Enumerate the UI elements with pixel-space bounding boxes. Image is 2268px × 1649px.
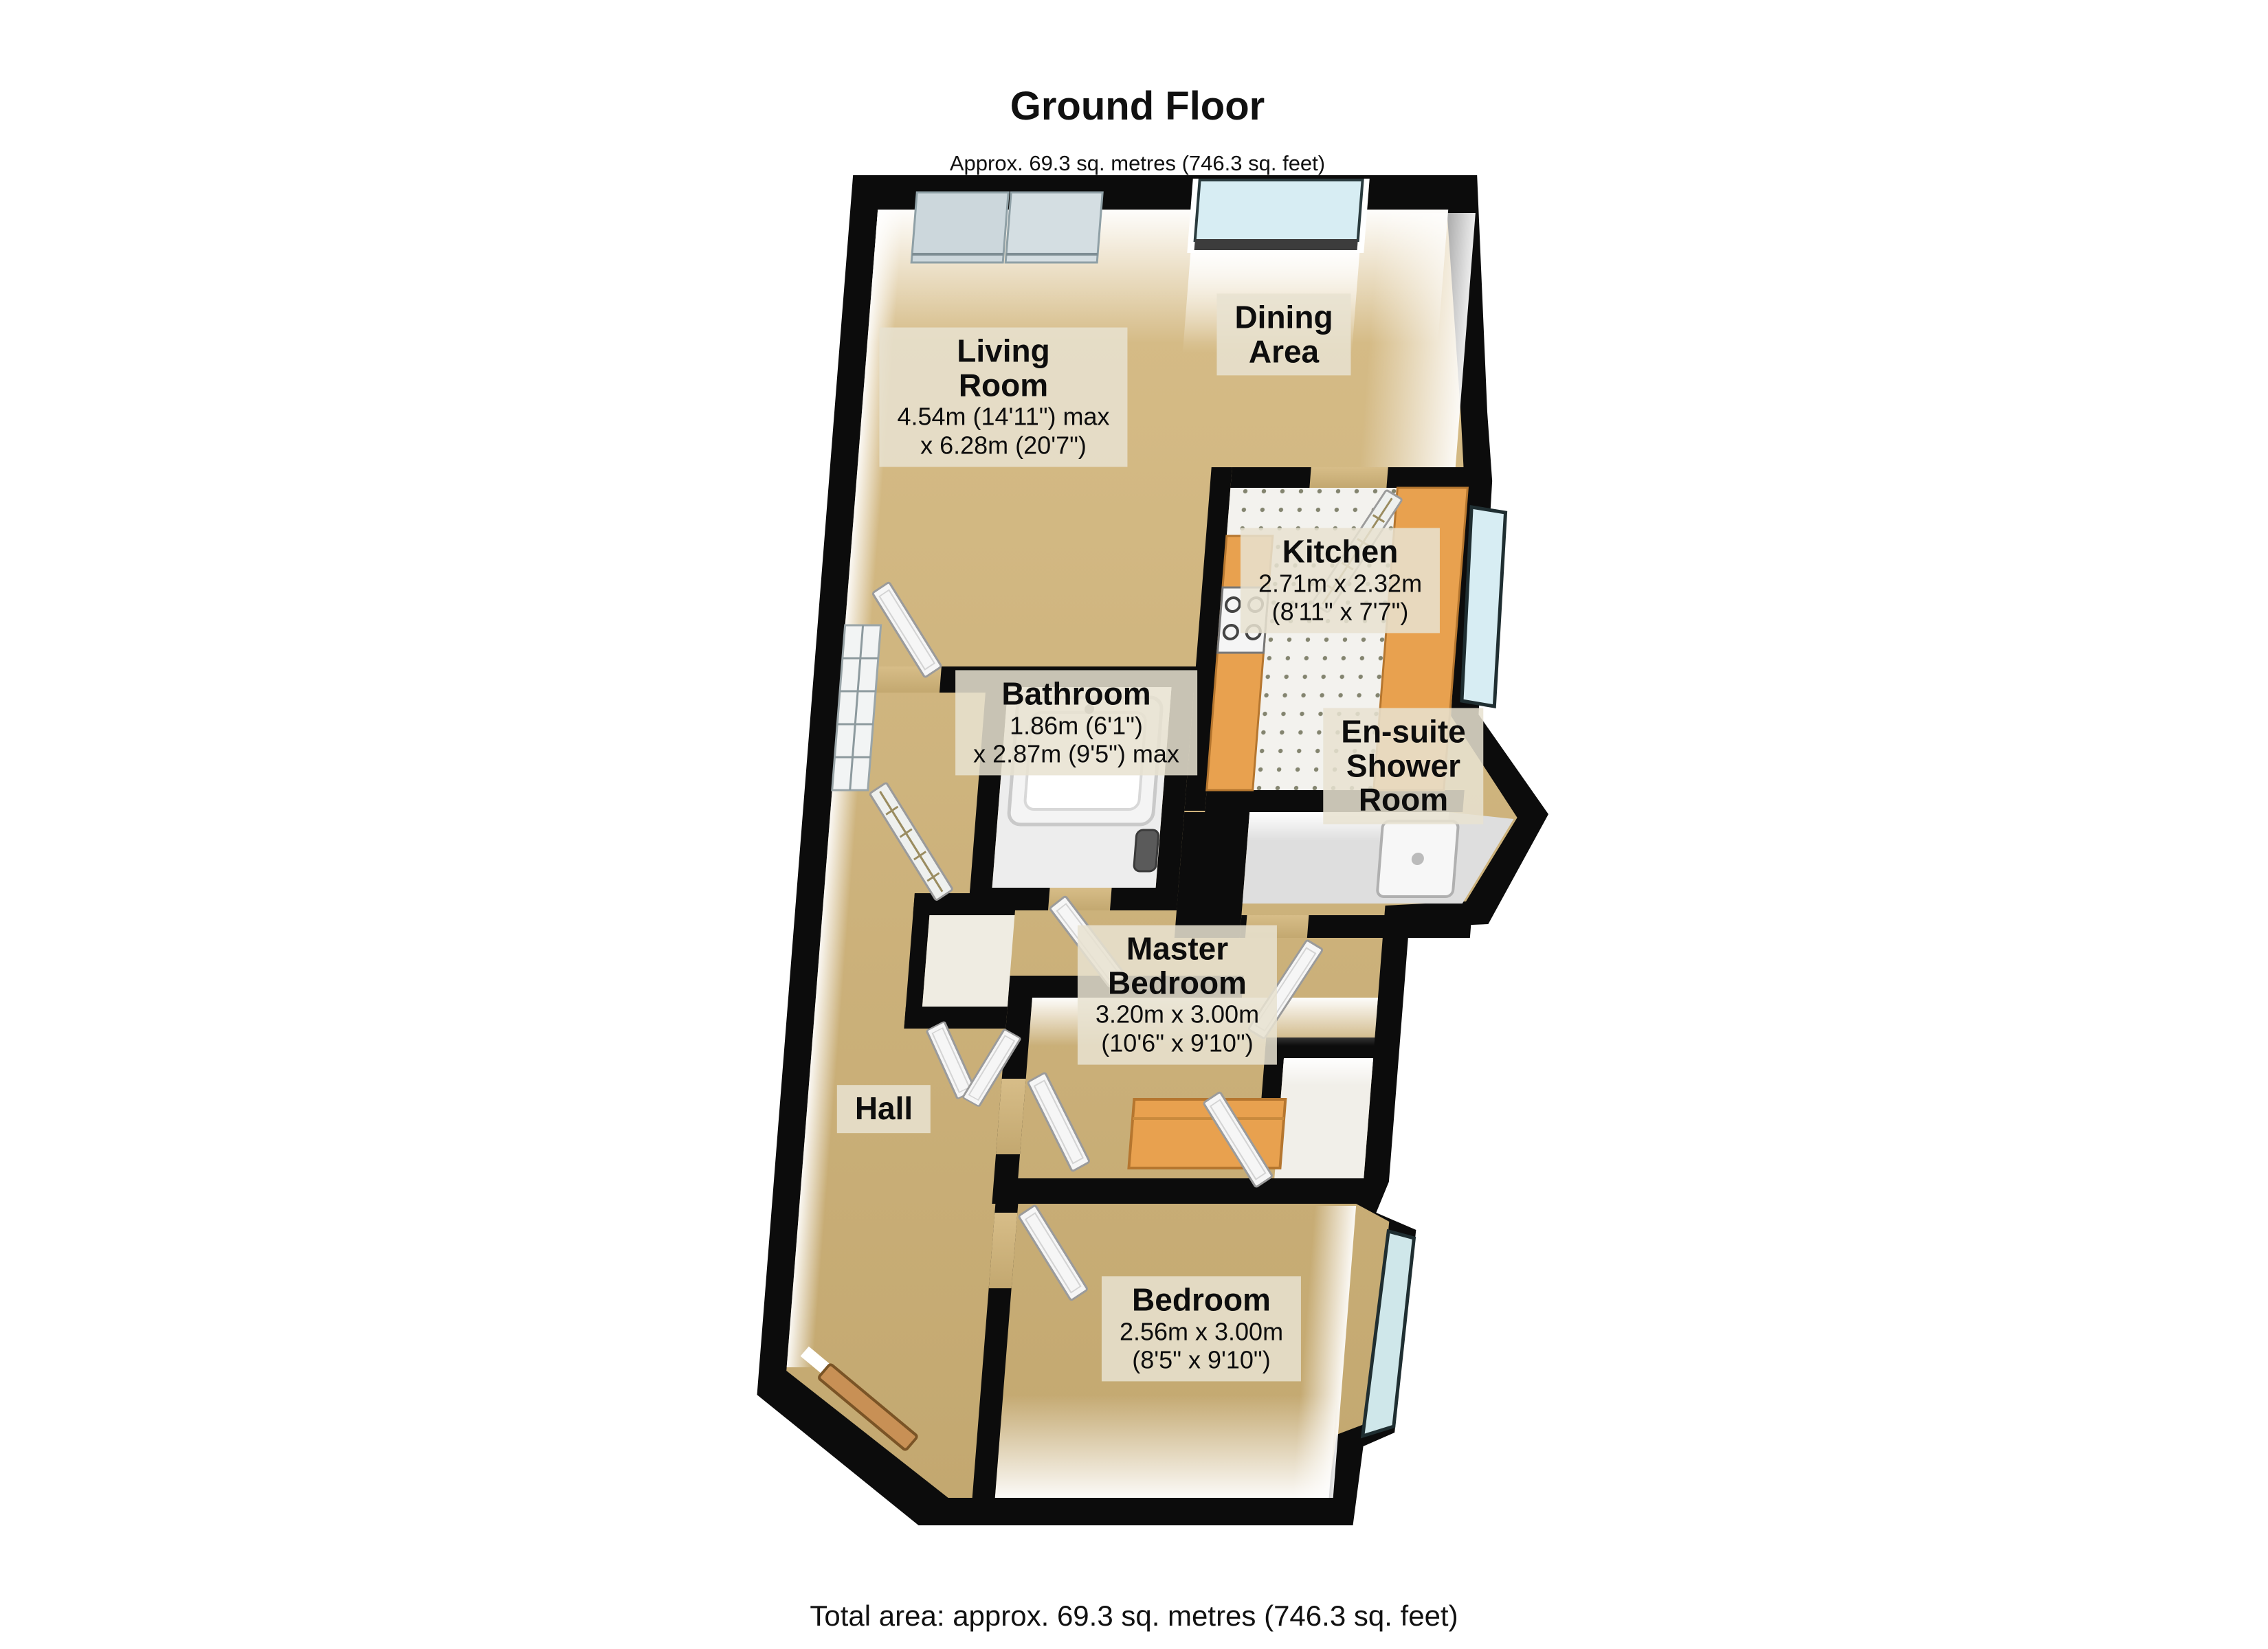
- room-name-line: Shower: [1341, 749, 1465, 783]
- room-dim-line: 2.56m x 3.00m: [1120, 1317, 1283, 1346]
- room-label-living-room: Living Room 4.54m (14'11") max x 6.28m (…: [879, 328, 1127, 467]
- room-dim-line: (10'6" x 9'10"): [1096, 1029, 1259, 1058]
- room-dim-line: 4.54m (14'11") max: [897, 403, 1109, 431]
- room-name-line: En-suite: [1341, 715, 1465, 749]
- master-alcove-wallface: [1282, 1058, 1373, 1086]
- room-name-line: Room: [897, 368, 1109, 403]
- floor-title: Ground Floor: [1010, 85, 1265, 128]
- room-dim-line: 2.71m x 2.32m: [1258, 569, 1422, 598]
- room-dim-line: (8'5" x 9'10"): [1120, 1346, 1283, 1375]
- room-label-bedroom: Bedroom 2.56m x 3.00m (8'5" x 9'10"): [1102, 1276, 1301, 1381]
- page-title: Ground Floor: [1010, 85, 1265, 128]
- room-name-line: Bathroom: [973, 677, 1179, 711]
- room-dim-line: x 2.87m (9'5") max: [973, 740, 1179, 769]
- hall-cupboard-floor: [922, 915, 1014, 1007]
- room-label-bathroom: Bathroom 1.86m (6'1") x 2.87m (9'5") max: [955, 670, 1197, 775]
- floorplan-page: Ground Floor Approx. 69.3 sq. metres (74…: [0, 0, 2268, 1649]
- total-area-text: Total area: approx. 69.3 sq. metres (746…: [810, 1600, 1458, 1633]
- room-dim-line: x 6.28m (20'7"): [897, 431, 1109, 460]
- room-name-line: Hall: [855, 1092, 913, 1126]
- floor-subtitle: Approx. 69.3 sq. metres (746.3 sq. feet): [950, 151, 1325, 176]
- room-label-hall: Hall: [837, 1085, 931, 1133]
- room-dim-line: (8'11" x 7'7"): [1258, 598, 1422, 627]
- room-name-line: Kitchen: [1258, 535, 1422, 569]
- room-label-kitchen: Kitchen 2.71m x 2.32m (8'11" x 7'7"): [1241, 528, 1440, 633]
- room-name-line: Bedroom: [1120, 1283, 1283, 1317]
- wallface-bedroom-bottom: [995, 1395, 1337, 1498]
- room-name-line: Room: [1341, 783, 1465, 818]
- room-dim-line: 1.86m (6'1"): [973, 711, 1179, 740]
- room-dim-line: 3.20m x 3.00m: [1096, 1000, 1259, 1029]
- room-label-master-bedroom: Master Bedroom 3.20m x 3.00m (10'6" x 9'…: [1078, 926, 1277, 1065]
- room-label-dining-area: Dining Area: [1216, 293, 1350, 375]
- floorplan-canvas: [0, 0, 2268, 1649]
- room-label-en-suite: En-suite Shower Room: [1323, 708, 1483, 824]
- room-name-line: Bedroom: [1096, 966, 1259, 1000]
- room-name-line: Area: [1234, 335, 1333, 369]
- room-name-line: Master: [1096, 932, 1259, 967]
- toilet-icon: [1133, 830, 1159, 871]
- room-name-line: Living: [897, 335, 1109, 369]
- room-name-line: Dining: [1234, 300, 1333, 335]
